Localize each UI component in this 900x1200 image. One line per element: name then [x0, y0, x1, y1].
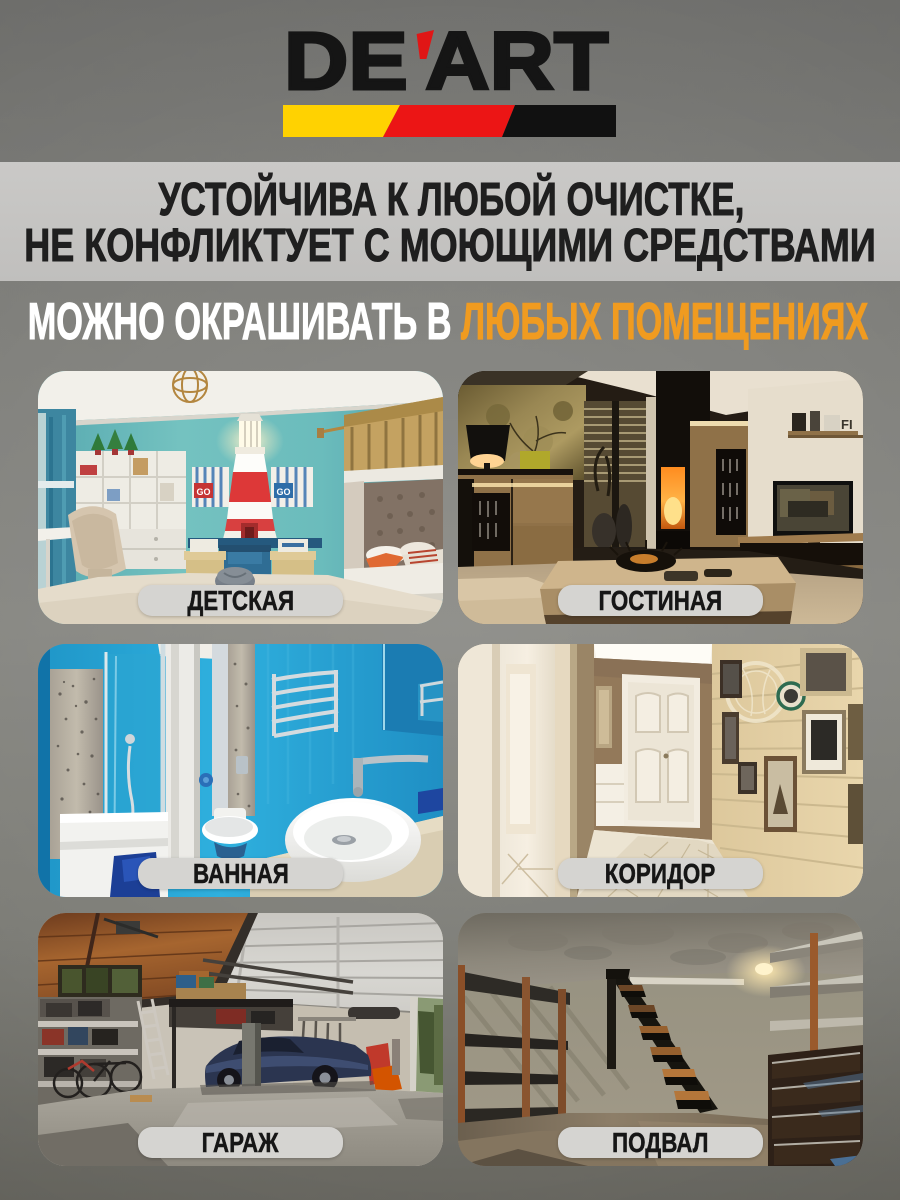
svg-text:FI: FI [841, 417, 853, 432]
svg-text:GO: GO [276, 487, 290, 497]
svg-text:GO: GO [196, 487, 210, 497]
